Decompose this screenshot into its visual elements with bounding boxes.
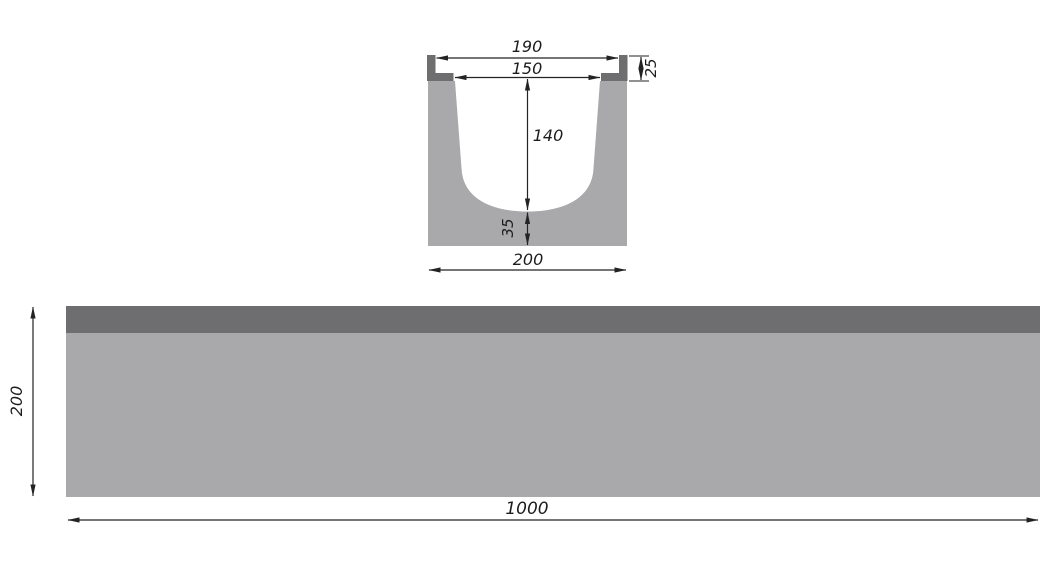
dim-top-width-label: 190 [512, 37, 543, 56]
cross-section-view: 190 150 25 140 35 200 [427, 37, 660, 270]
side-view-body [66, 306, 1040, 497]
dim-floor-thickness-label: 35 [499, 218, 517, 237]
side-view: 200 1000 [7, 306, 1040, 520]
dim-outer-width-label: 200 [513, 250, 544, 269]
dim-inner-width: 150 [455, 59, 600, 78]
dim-outer-width: 200 [429, 250, 626, 270]
dim-inner-depth: 140 [528, 79, 564, 210]
dim-side-length-label: 1000 [505, 499, 548, 519]
side-view-top-strip [66, 306, 1040, 333]
dim-side-length: 1000 [68, 499, 1038, 520]
dim-top-width: 190 [437, 37, 619, 58]
dim-rail-height: 25 [629, 56, 660, 81]
left-edge-rail [427, 55, 454, 81]
dim-side-height-label: 200 [7, 386, 26, 417]
dim-rail-height-label: 25 [642, 58, 660, 77]
right-edge-rail [601, 55, 628, 81]
technical-drawing: 190 150 25 140 35 200 [0, 0, 1062, 586]
dim-inner-width-label: 150 [512, 59, 543, 78]
dim-side-height: 200 [7, 307, 33, 496]
dim-inner-depth-label: 140 [533, 126, 564, 145]
